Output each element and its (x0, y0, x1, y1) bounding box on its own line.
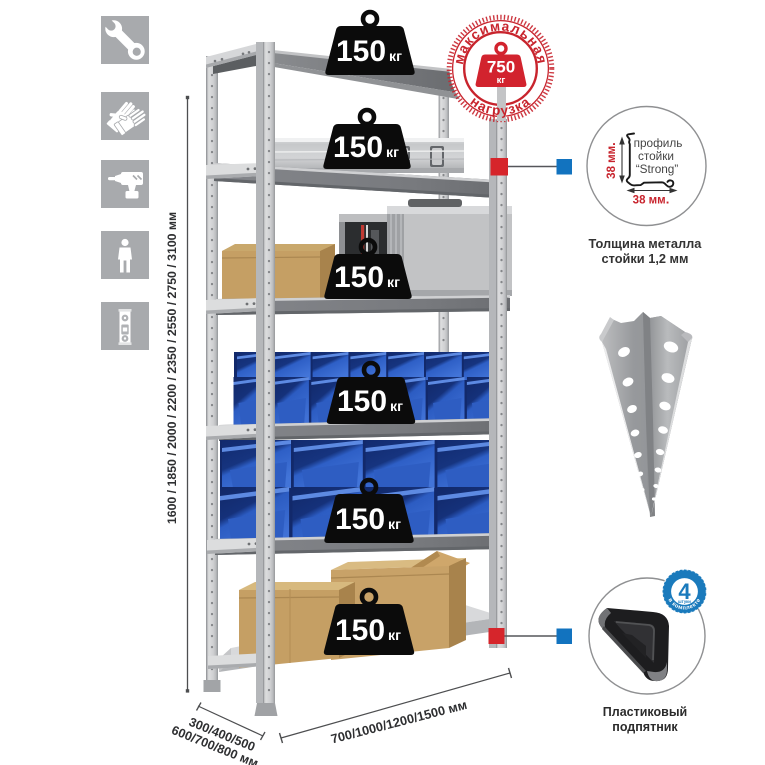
svg-text:стойки: стойки (638, 149, 674, 163)
svg-text:подпятник: подпятник (612, 720, 678, 734)
svg-text:стойки 1,2 мм: стойки 1,2 мм (601, 251, 688, 266)
svg-text:Пластиковый: Пластиковый (603, 705, 687, 719)
svg-text:38 мм.: 38 мм. (603, 142, 618, 179)
svg-text:кг: кг (497, 75, 506, 86)
svg-text:“Strong”: “Strong” (636, 162, 679, 176)
svg-text:1600 / 1850 / 2000 / 2200 / 23: 1600 / 1850 / 2000 / 2200 / 2350 / 2550 … (165, 212, 179, 524)
svg-text:штуки: штуки (678, 599, 691, 604)
svg-text:750: 750 (487, 58, 515, 77)
svg-text:профиль: профиль (634, 136, 683, 150)
svg-text:38 мм.: 38 мм. (633, 192, 670, 207)
svg-text:Толщина металла: Толщина металла (589, 236, 703, 251)
